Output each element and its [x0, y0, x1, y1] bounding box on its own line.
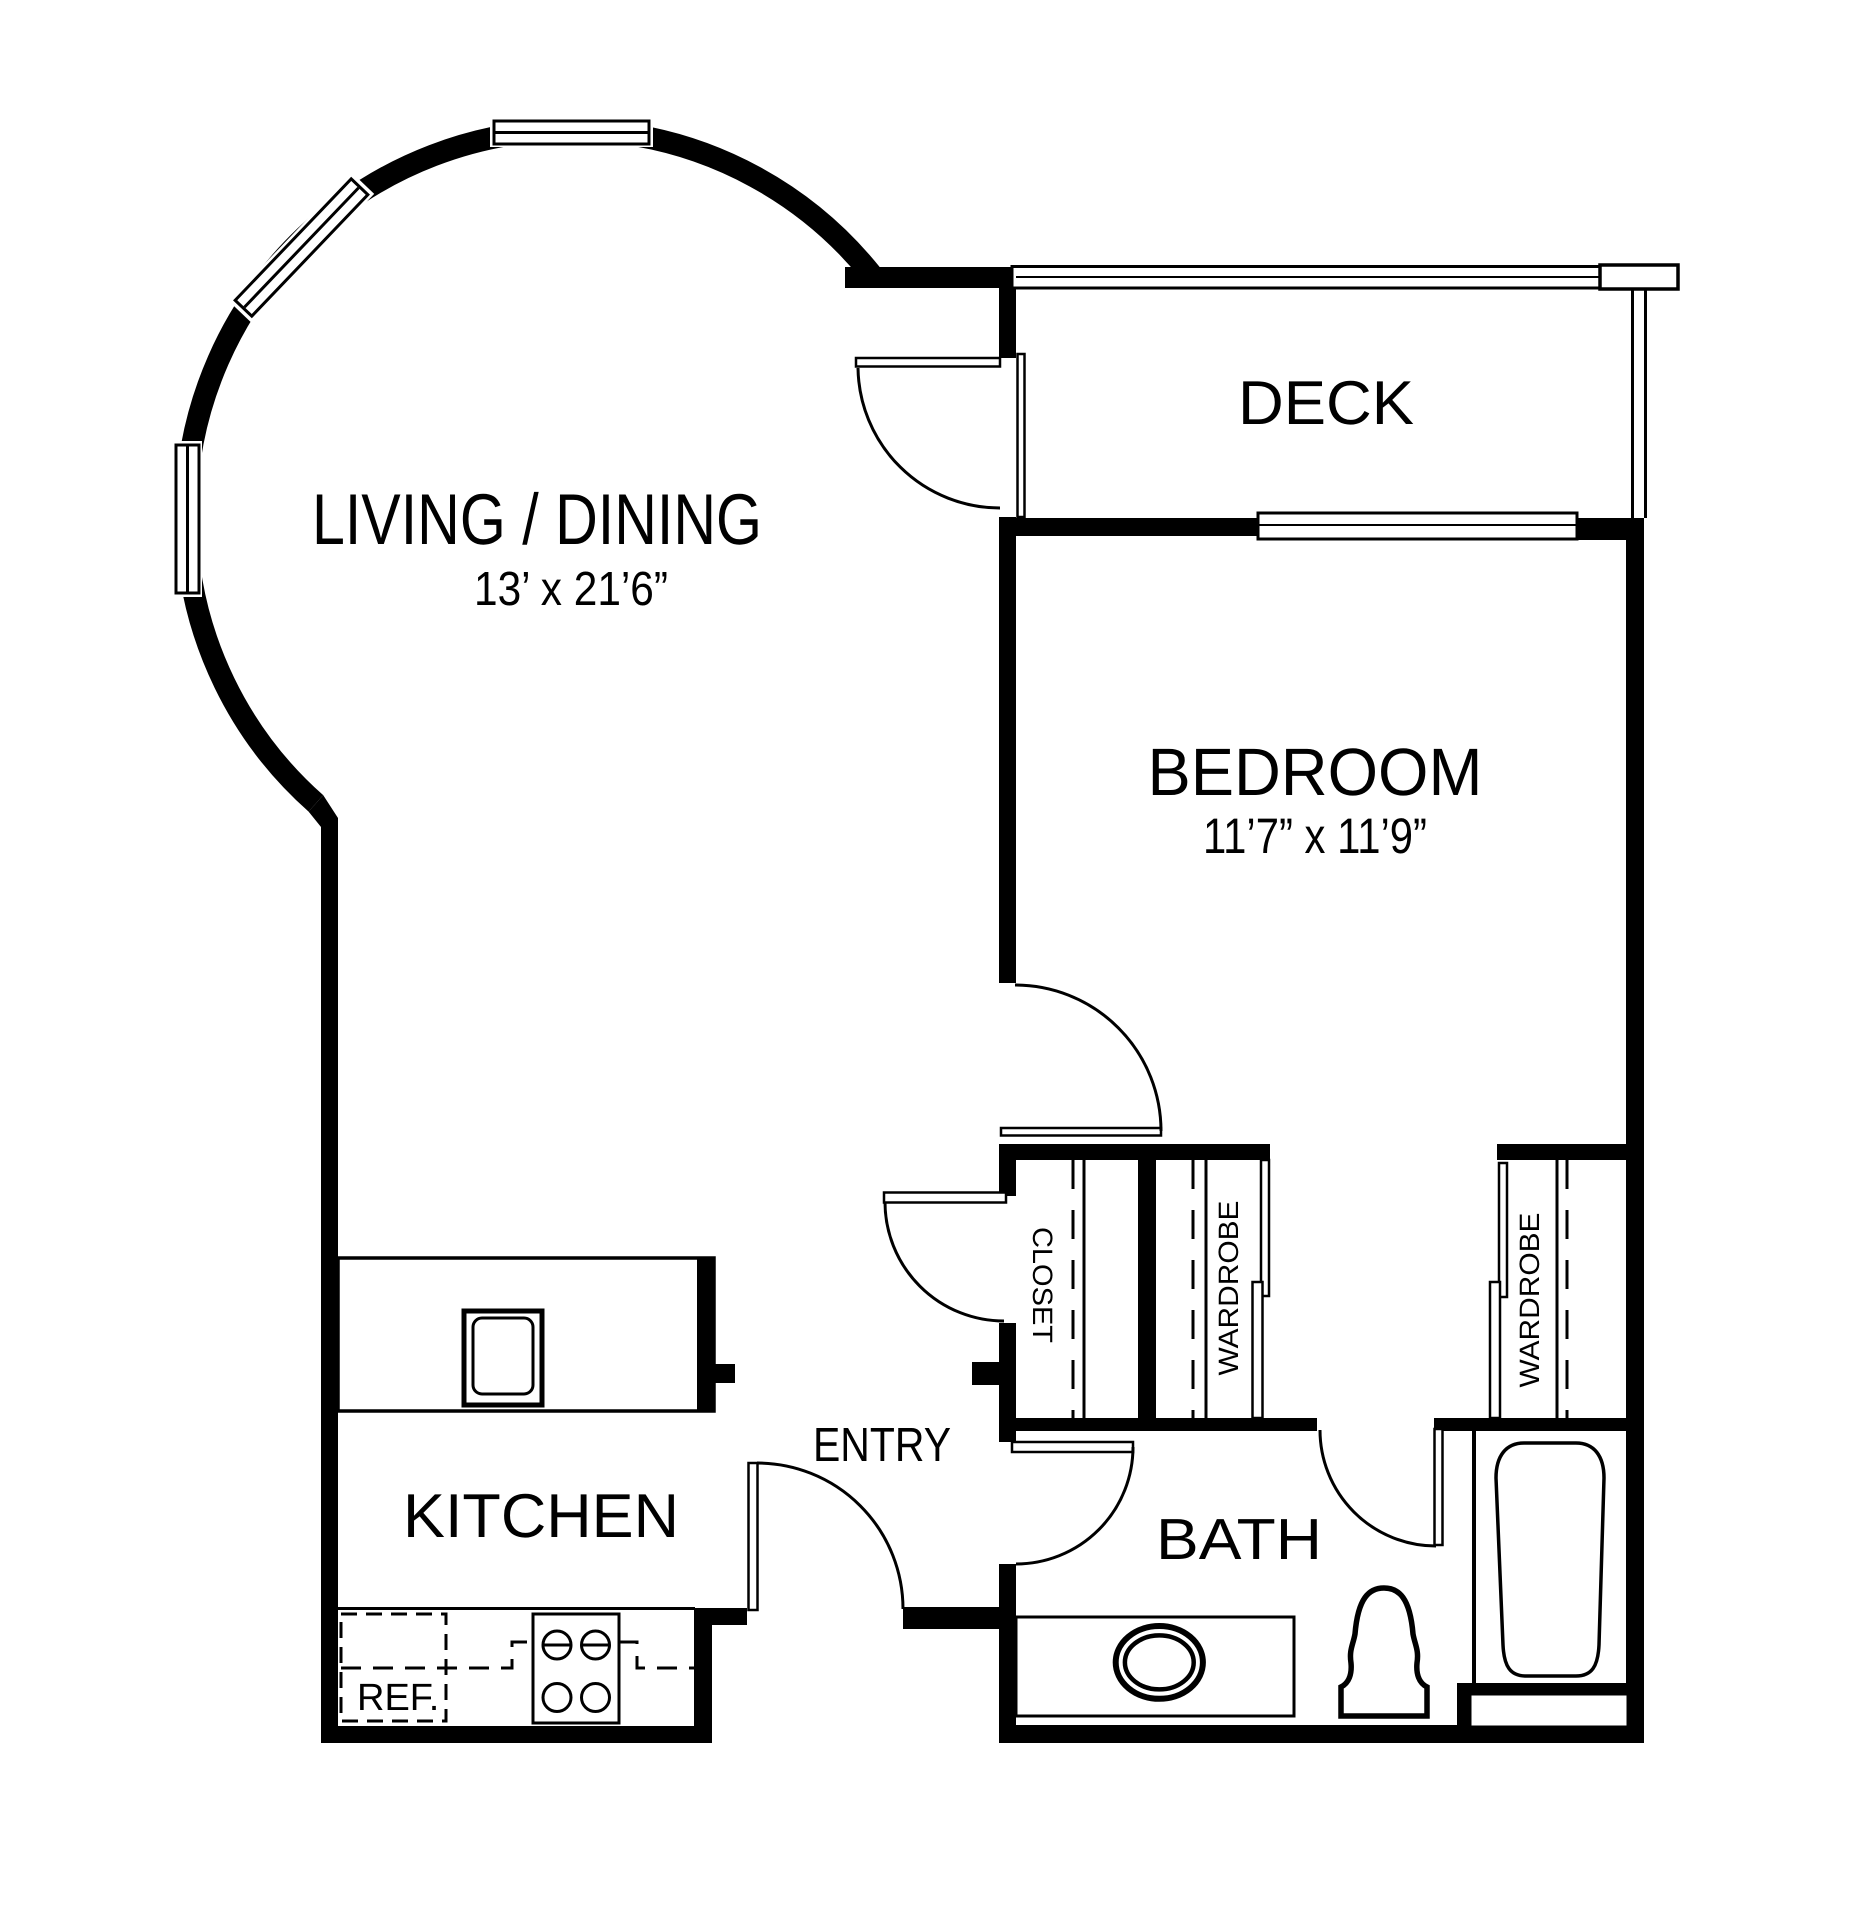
svg-text:CLOSET: CLOSET [1027, 1227, 1058, 1343]
svg-text:BEDROOM: BEDROOM [1148, 735, 1483, 810]
svg-text:LIVING / DINING: LIVING / DINING [312, 480, 762, 560]
svg-text:13’ x 21’6”: 13’ x 21’6” [474, 563, 668, 616]
svg-text:REF.: REF. [357, 1677, 439, 1719]
svg-text:KITCHEN: KITCHEN [403, 1482, 679, 1551]
svg-text:DECK: DECK [1238, 369, 1414, 438]
svg-text:BATH: BATH [1156, 1507, 1322, 1572]
svg-text:ENTRY: ENTRY [813, 1419, 951, 1472]
svg-text:WARDROBE: WARDROBE [1514, 1213, 1545, 1388]
svg-text:11’7” x 11’9”: 11’7” x 11’9” [1203, 808, 1427, 864]
svg-text:WARDROBE: WARDROBE [1213, 1201, 1244, 1376]
